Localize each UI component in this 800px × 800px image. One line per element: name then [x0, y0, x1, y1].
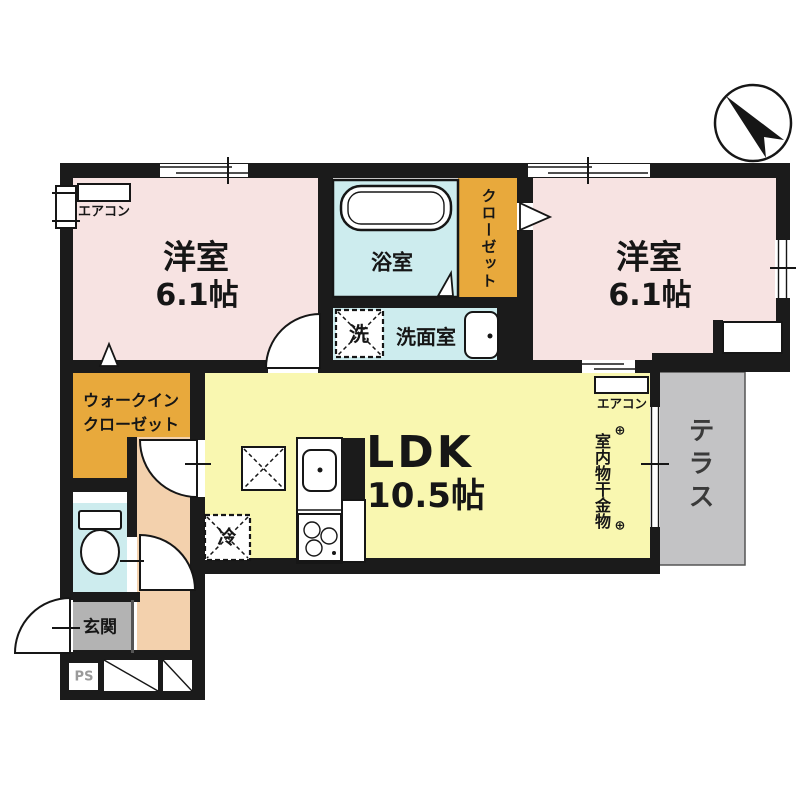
aircon-ldk-box — [595, 377, 648, 393]
ldk-label: LDK — [366, 431, 474, 475]
opening-room2-sliding-door — [582, 360, 635, 373]
western-room-1-area: 6.1帖 — [155, 281, 238, 311]
laundry-hook-symbol-bottom: ⊕ — [615, 520, 626, 533]
cupboard-box — [242, 447, 285, 490]
closet-label: クローゼット — [481, 188, 496, 290]
kitchen-sink-drain — [318, 468, 323, 473]
walk-in-closet-floor-lower — [73, 437, 127, 482]
floor-plan: エアコン 洋室 6.1帖 浴室 クローゼット 洋室 6.1帖 洗 洗面室 ウォー… — [0, 0, 800, 800]
opening-toilet-door — [127, 537, 137, 592]
entrance-hall-step-line — [131, 600, 134, 653]
stove-knob — [332, 551, 336, 555]
wall-washroom-right — [497, 297, 533, 373]
western-room-2-area: 6.1帖 — [608, 281, 691, 311]
wall-terrace-bottom-stub — [650, 527, 660, 567]
toilet-tank — [79, 511, 121, 529]
window-room1-top — [160, 164, 248, 177]
walk-in-closet-label-line1: ウォークイン — [83, 393, 179, 409]
wall-closet-right — [517, 178, 533, 303]
indoor-laundry-hardware-label: 室内物干金物 — [593, 433, 609, 529]
pipe-space-label: PS — [75, 671, 94, 684]
aircon-ldk-label: エアコン — [597, 398, 647, 411]
wall-room2-bottom — [652, 353, 790, 372]
laundry-hook-symbol-top: ⊕ — [615, 425, 626, 438]
wall-middle-horizontal — [60, 360, 660, 373]
western-room-1-label: 洋室 — [163, 241, 229, 274]
wall-terrace-top-stub — [650, 372, 660, 407]
washing-machine-label: 洗 — [349, 324, 369, 344]
wall-wic-bottom — [60, 478, 137, 492]
door-arc-entrance — [15, 598, 70, 653]
terrace-label: テラス — [686, 417, 712, 516]
wall-room2-notch-stub — [713, 320, 723, 355]
kitchen-lower-cabinet — [342, 500, 365, 562]
wall-wic-lower-right — [127, 437, 137, 502]
room2-corner-counter — [723, 322, 782, 353]
aircon-room1-box — [78, 184, 130, 201]
refrigerator-label: 冷 — [217, 529, 236, 548]
ldk-area: 10.5帖 — [367, 479, 485, 513]
western-room-2-label: 洋室 — [616, 241, 682, 274]
kitchen-partition-wall — [342, 438, 365, 500]
aircon-room1-label: エアコン — [78, 206, 130, 219]
washroom-label: 洗面室 — [396, 327, 456, 347]
bathroom-label: 浴室 — [371, 253, 413, 274]
toilet-bowl — [81, 530, 119, 574]
vanity-sink — [465, 312, 498, 358]
walk-in-closet-label-line2: クローゼット — [83, 417, 179, 433]
wall-ldk-bottom — [195, 558, 660, 574]
entrance-label: 玄関 — [83, 620, 117, 637]
vanity-sink-drain — [488, 334, 493, 339]
